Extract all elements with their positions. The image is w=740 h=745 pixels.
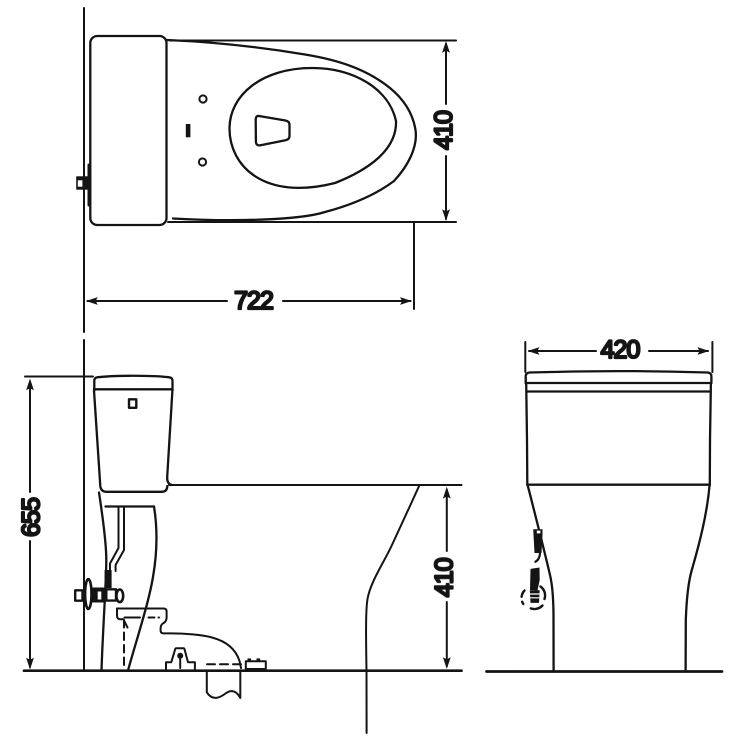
svg-text:722: 722 (234, 287, 273, 315)
svg-text:420: 420 (601, 336, 640, 364)
svg-text:410: 410 (430, 111, 458, 150)
svg-text:655: 655 (18, 498, 46, 537)
svg-text:410: 410 (431, 558, 459, 597)
